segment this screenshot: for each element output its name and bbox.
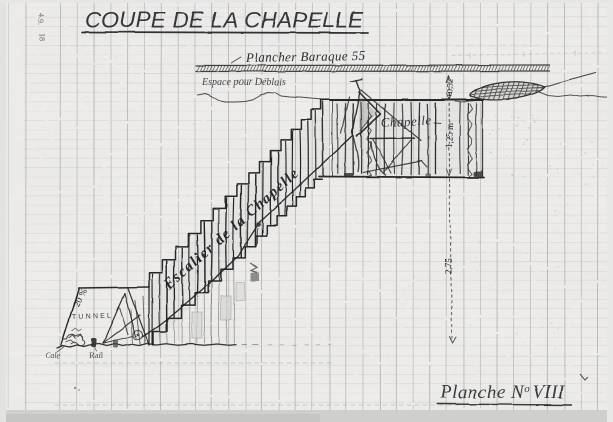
svg-text:2,75: 2,75: [444, 258, 454, 274]
svg-text:Espace pour Déblais: Espace pour Déblais: [201, 77, 286, 88]
svg-text:4.9.: 4.9.: [36, 13, 45, 25]
svg-text:1,25 m: 1,25 m: [445, 123, 455, 148]
svg-text:TUNNEL: TUNNEL: [72, 313, 113, 321]
svg-text:Planche NoVIII: Planche NoVIII: [439, 382, 566, 403]
svg-text:18: 18: [38, 33, 47, 41]
svg-text:COUPE DE LA CHAPELLE: COUPE DE LA CHAPELLE: [85, 8, 364, 33]
svg-text:Cale: Cale: [45, 351, 61, 360]
svg-text:Plancher Baraque 55: Plancher Baraque 55: [245, 48, 366, 65]
svg-text:Rail: Rail: [89, 350, 104, 360]
svg-text:Chapelle: Chapelle: [380, 112, 432, 130]
svg-text:+0,52: +0,52: [445, 78, 455, 98]
